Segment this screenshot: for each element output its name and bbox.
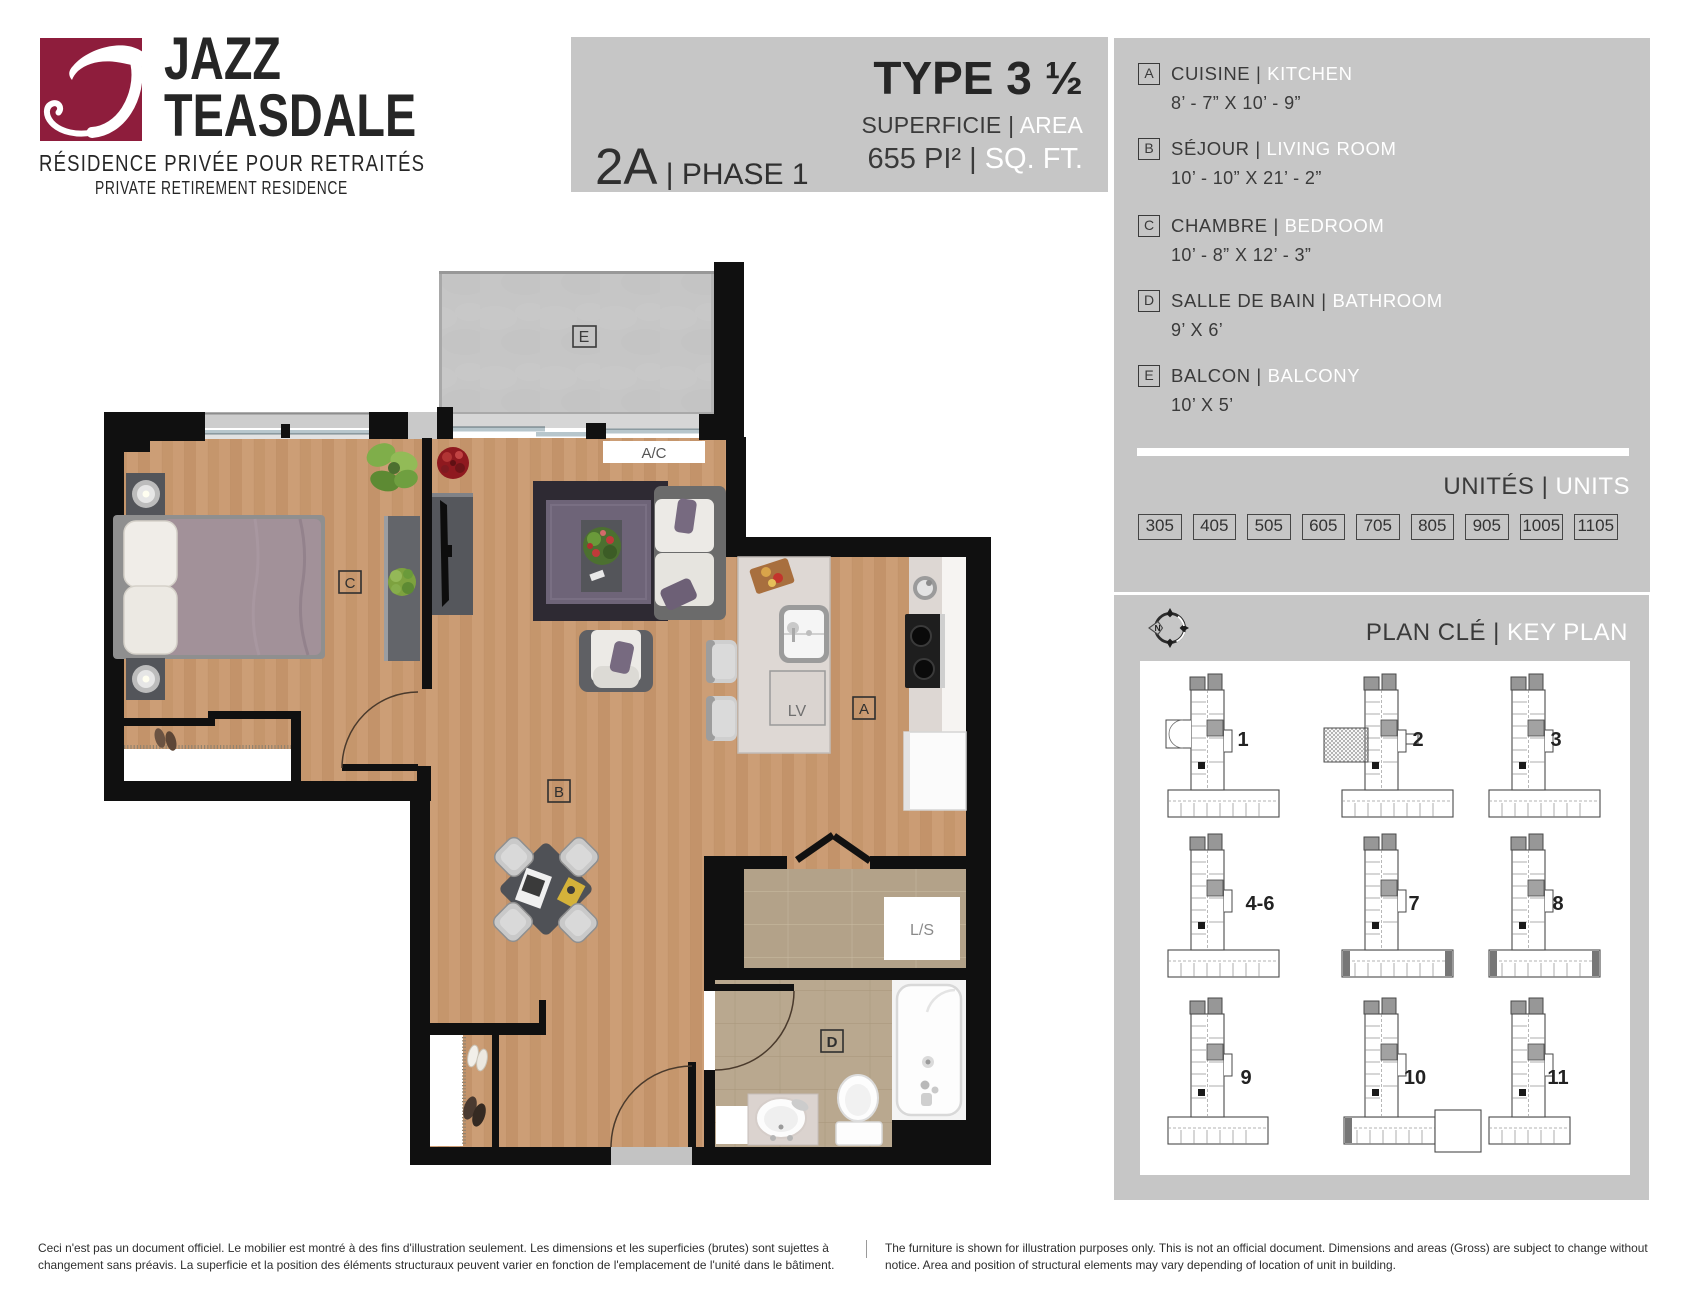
- svg-text:11: 11: [1547, 1067, 1568, 1089]
- svg-text:B: B: [554, 784, 564, 801]
- svg-text:LV: LV: [788, 703, 807, 720]
- svg-text:7: 7: [1408, 893, 1419, 915]
- svg-text:3: 3: [1550, 729, 1561, 751]
- svg-text:8: 8: [1552, 893, 1563, 915]
- svg-text:A: A: [859, 701, 869, 718]
- svg-text:D: D: [827, 1034, 838, 1051]
- svg-text:E: E: [579, 329, 590, 346]
- svg-text:1: 1: [1237, 729, 1248, 751]
- svg-text:C: C: [345, 575, 356, 592]
- svg-text:9: 9: [1240, 1067, 1251, 1089]
- svg-text:10: 10: [1404, 1067, 1426, 1089]
- svg-text:L/S: L/S: [910, 922, 934, 939]
- svg-text:4-6: 4-6: [1246, 893, 1275, 915]
- svg-text:A/C: A/C: [641, 445, 666, 462]
- svg-text:2: 2: [1412, 729, 1423, 751]
